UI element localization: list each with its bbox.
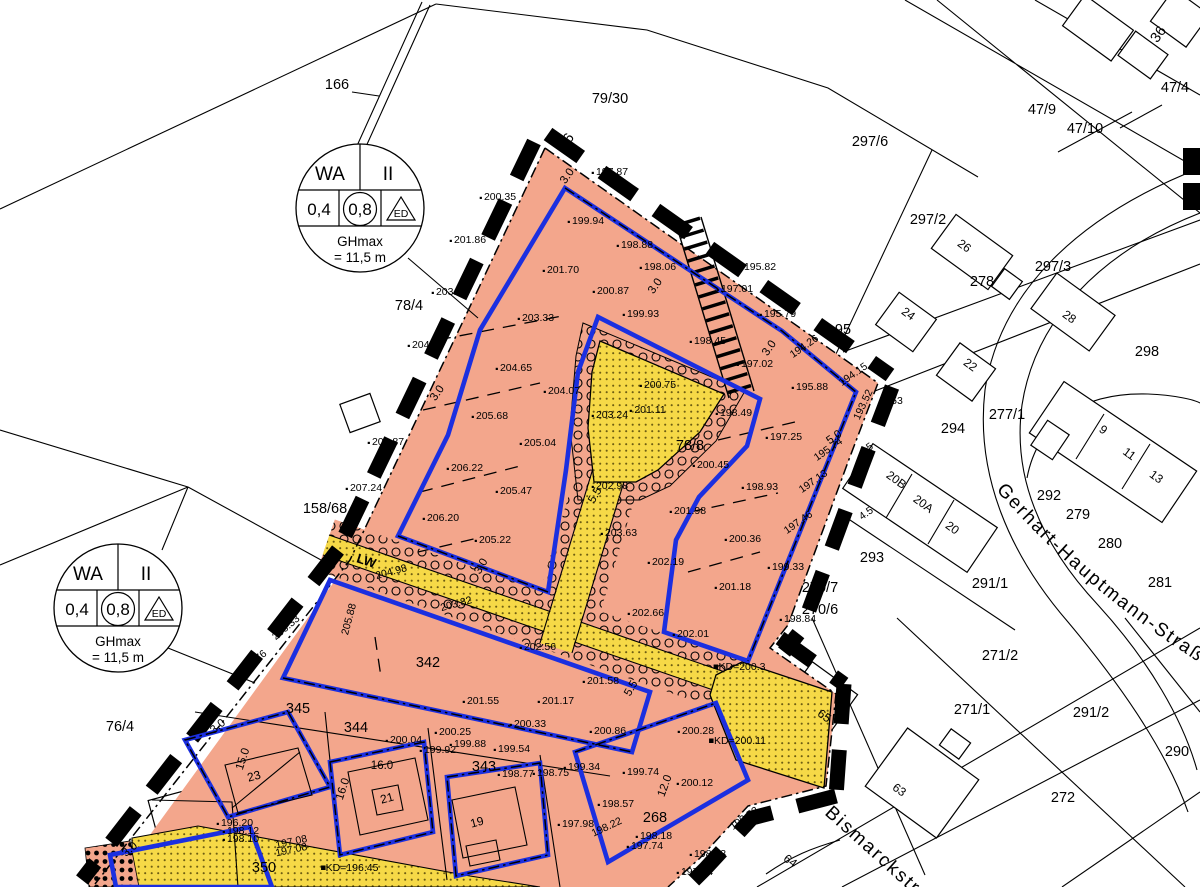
survey-point-marker xyxy=(408,345,410,347)
dimension-label: 16.0 xyxy=(371,760,393,772)
parcel-label: 166 xyxy=(325,77,349,93)
elevation-label: 195.88 xyxy=(796,381,828,393)
survey-point-marker xyxy=(640,267,642,269)
legend-height-value: = 11,5 m xyxy=(92,650,144,665)
legend-gfz: 0,8 xyxy=(348,200,372,219)
elevation-label: 197.87 xyxy=(596,166,628,178)
survey-point-marker xyxy=(558,824,560,826)
elevation-label: 203.24 xyxy=(596,409,628,421)
elevation-label: 201.70 xyxy=(547,264,579,276)
elevation-label: 199.93 xyxy=(627,308,659,320)
parcel-label: 47/9 xyxy=(1028,102,1056,118)
zoning-map-canvas: WA II 0,4 0,8 ED GHmax = 11,5 m WA II 0,… xyxy=(0,0,1200,887)
survey-point-marker xyxy=(590,731,592,733)
legend-roof-form: ED xyxy=(394,208,409,220)
elevation-label: 198.77 xyxy=(502,768,534,780)
survey-point-marker xyxy=(346,488,348,490)
survey-point-marker xyxy=(496,368,498,370)
elevation-label: 199.88 xyxy=(454,738,486,750)
survey-point-marker xyxy=(709,739,714,744)
parcel-label: 293 xyxy=(860,550,884,566)
parcel-label: 291/2 xyxy=(1073,705,1109,721)
survey-point-marker xyxy=(520,443,522,445)
legend-height-label: GHmax xyxy=(95,634,141,649)
parcel-label: 297/6 xyxy=(852,134,888,150)
elevation-label: 200.04 xyxy=(390,734,422,746)
survey-point-marker xyxy=(568,221,570,223)
survey-point-marker xyxy=(678,731,680,733)
survey-point-marker xyxy=(716,413,718,415)
survey-point-marker xyxy=(640,385,642,387)
elevation-label: 200.45 xyxy=(697,459,729,471)
survey-point-marker xyxy=(792,387,794,389)
elevation-label: 201.18 xyxy=(719,581,751,593)
parcel-label: 268 xyxy=(643,810,667,826)
elevation-label: 200.86 xyxy=(594,725,626,737)
elevation-label: 198.06 xyxy=(644,261,676,273)
parcel-label: 281 xyxy=(1148,575,1172,591)
survey-point-marker xyxy=(737,364,739,366)
elevation-label: 201.11 xyxy=(634,404,665,416)
survey-point-marker xyxy=(544,391,546,393)
elevation-label: 198.75 xyxy=(537,767,569,779)
parcel-label: 280 xyxy=(1098,536,1122,552)
parcel-label: 342 xyxy=(416,655,440,671)
parcel-label: 47/10 xyxy=(1067,121,1103,137)
elevation-label: 202.19 xyxy=(652,556,684,568)
legend-storeys: II xyxy=(383,164,394,185)
elevation-label: 198.93 xyxy=(746,481,778,493)
elevation-label: 201.98 xyxy=(674,505,706,517)
survey-point-marker xyxy=(623,314,625,316)
survey-point-marker xyxy=(435,732,437,734)
elevation-label: 198.84 xyxy=(784,613,816,625)
survey-point-marker xyxy=(740,267,742,269)
survey-point-marker xyxy=(677,872,679,874)
survey-point-marker xyxy=(717,289,719,291)
elevation-label: 197.64 xyxy=(681,866,713,878)
elevation-label: 204.65 xyxy=(500,362,532,374)
survey-point-marker xyxy=(690,854,692,856)
survey-point-marker xyxy=(420,750,422,752)
survey-point-marker xyxy=(592,415,594,417)
parcel-label: 344 xyxy=(344,720,368,736)
survey-point-marker xyxy=(760,314,762,316)
elevation-label: 199.33 xyxy=(772,561,804,573)
survey-point-marker xyxy=(598,804,600,806)
parcel-label: 47/4 xyxy=(1161,80,1189,96)
legend-use-type: WA xyxy=(315,164,345,185)
elevation-label: 204.45 xyxy=(412,339,444,351)
parcel-label: 271/2 xyxy=(982,648,1018,664)
parcel-label: 158/68 xyxy=(303,501,347,517)
elevation-label: 200.36 xyxy=(729,533,761,545)
parcel-label: 343 xyxy=(472,759,496,775)
survey-point-marker xyxy=(538,701,540,703)
elevation-label: 204.07 xyxy=(548,385,580,397)
legend-gfz: 0,8 xyxy=(106,600,130,619)
elevation-label: 201.55 xyxy=(467,695,499,707)
kd-elevation-label: KD=200.3 xyxy=(719,661,766,673)
survey-point-marker xyxy=(648,562,650,564)
survey-point-marker xyxy=(518,318,520,320)
legend-symbol-north: WA II 0,4 0,8 ED GHmax = 11,5 m xyxy=(296,144,424,272)
legend-roof-form: ED xyxy=(152,608,167,620)
elevation-label: 197.02 xyxy=(741,358,773,370)
survey-point-marker xyxy=(510,724,512,726)
elevation-label: 206.20 xyxy=(427,512,459,524)
survey-point-marker xyxy=(494,749,496,751)
parcel-label: 297/3 xyxy=(1035,259,1071,275)
elevation-label: 201.58 xyxy=(587,675,619,687)
elevation-label: 198.57 xyxy=(602,798,634,810)
elevation-label: 200.28 xyxy=(682,725,714,737)
elevation-label: 206.87 xyxy=(372,436,404,448)
elevation-label: 198.10 xyxy=(227,833,259,845)
survey-point-marker xyxy=(617,245,619,247)
elevation-label: 200.35 xyxy=(484,191,516,203)
elevation-label: 205.68 xyxy=(476,410,508,422)
elevation-label: 207.24 xyxy=(350,482,382,494)
elevation-label: 199.94 xyxy=(572,215,604,227)
survey-point-marker xyxy=(693,465,695,467)
elevation-label: 203.63 xyxy=(605,527,637,539)
elevation-label: 197.01 xyxy=(721,283,753,295)
elevation-label: 200.12 xyxy=(681,777,713,789)
survey-point-marker xyxy=(630,410,632,412)
elevation-label: 202.01 xyxy=(677,628,709,640)
parcel-label: 292 xyxy=(1037,488,1061,504)
survey-point-marker xyxy=(628,613,630,615)
survey-point-marker xyxy=(498,774,500,776)
survey-point-marker xyxy=(593,291,595,293)
elevation-label: 200.87 xyxy=(597,285,629,297)
legend-grz: 0,4 xyxy=(65,600,89,619)
survey-point-marker xyxy=(583,681,585,683)
elevation-label: 205.22 xyxy=(479,534,511,546)
parcel-label: 78/8 xyxy=(676,438,704,454)
survey-point-marker xyxy=(520,647,522,649)
survey-point-marker xyxy=(690,341,692,343)
parcel-label: 270/7 xyxy=(802,580,838,596)
parcel-label: 291/1 xyxy=(972,576,1008,592)
zoning-map-page: WA II 0,4 0,8 ED GHmax = 11,5 m WA II 0,… xyxy=(0,0,1200,887)
survey-point-marker xyxy=(450,744,452,746)
elevation-label: 199.54 xyxy=(498,743,530,755)
parcel-label: 76/4 xyxy=(106,719,134,735)
survey-point-marker xyxy=(623,772,625,774)
survey-point-marker xyxy=(714,665,719,670)
survey-point-marker xyxy=(423,518,425,520)
parcel-label: 290 xyxy=(1165,744,1189,760)
elevation-label: 197.25 xyxy=(770,431,802,443)
elevation-label: 198.49 xyxy=(720,407,752,419)
parcel-label: 95 xyxy=(835,322,851,338)
legend-height-value: = 11,5 m xyxy=(334,250,386,265)
parcel-label: 47/ xyxy=(1187,184,1200,200)
survey-point-marker xyxy=(386,740,388,742)
elevation-label: 201.17 xyxy=(542,695,574,707)
survey-point-marker xyxy=(768,567,770,569)
elevation-label: 200.33 xyxy=(514,718,546,730)
elevation-label: 202.66 xyxy=(632,607,664,619)
elevation-label: 53 xyxy=(891,395,903,407)
elevation-label: 206.22 xyxy=(451,462,483,474)
parcel-label: 272 xyxy=(1051,790,1075,806)
elevation-label: 203.33 xyxy=(522,312,554,324)
legend-symbol-south: WA II 0,4 0,8 ED GHmax = 11,5 m xyxy=(54,544,182,672)
elevation-label: 201.86 xyxy=(454,234,486,246)
survey-point-marker xyxy=(725,539,727,541)
elevation-label: 198.33 xyxy=(694,848,726,860)
survey-point-marker xyxy=(368,442,370,444)
elevation-label: 200.25 xyxy=(439,726,471,738)
elevation-label: 195.82 xyxy=(744,261,776,273)
survey-point-marker xyxy=(627,846,629,848)
survey-point-marker xyxy=(432,292,434,294)
legend-storeys: II xyxy=(141,564,152,585)
survey-point-marker xyxy=(742,487,744,489)
survey-point-marker xyxy=(223,831,225,833)
elevation-label: 205.04 xyxy=(524,437,556,449)
survey-point-marker xyxy=(472,416,474,418)
elevation-label: 198.45 xyxy=(694,335,726,347)
elevation-label: 205.47 xyxy=(500,485,532,497)
parcel-label: 277/1 xyxy=(989,407,1025,423)
parcel-label: 78/4 xyxy=(395,298,423,314)
elevation-label: 199.34 xyxy=(568,761,600,773)
survey-point-marker xyxy=(223,839,225,841)
legend-use-type: WA xyxy=(73,564,103,585)
survey-point-marker xyxy=(496,491,498,493)
survey-point-marker xyxy=(475,540,477,542)
kd-elevation-label: KD=200.11 xyxy=(714,735,766,747)
parcel-label: 350 xyxy=(252,860,276,876)
elevation-label: 198.88 xyxy=(621,239,653,251)
survey-point-marker xyxy=(670,511,672,513)
kd-elevation-label: KD=196.45 xyxy=(326,862,379,874)
elevation-label: 202.56 xyxy=(524,641,556,653)
survey-point-marker xyxy=(217,823,219,825)
survey-point-marker xyxy=(780,619,782,621)
survey-point-marker xyxy=(677,783,679,785)
survey-point-marker xyxy=(766,437,768,439)
parcel-label: 278 xyxy=(970,274,994,290)
parcel-label: 345 xyxy=(286,701,310,717)
survey-point-marker xyxy=(673,634,675,636)
survey-point-marker xyxy=(463,701,465,703)
legend-grz: 0,4 xyxy=(307,200,331,219)
parcel-label: 271/1 xyxy=(954,702,990,718)
elevation-label: 197.74 xyxy=(631,840,663,852)
survey-point-marker xyxy=(636,836,638,838)
survey-point-marker xyxy=(447,468,449,470)
survey-point-marker xyxy=(543,270,545,272)
legend-height-label: GHmax xyxy=(337,234,383,249)
survey-point-marker xyxy=(601,533,603,535)
parcel-label: 294 xyxy=(941,421,965,437)
parcel-label: 79/30 xyxy=(592,91,628,107)
survey-point-marker xyxy=(480,197,482,199)
parcel-label: 279 xyxy=(1066,507,1090,523)
parcel-label: 298 xyxy=(1135,344,1159,360)
survey-point-marker xyxy=(715,587,717,589)
survey-point-marker xyxy=(450,240,452,242)
parcel-label: 297/2 xyxy=(910,212,946,228)
elevation-label: 199.74 xyxy=(627,766,659,778)
survey-point-marker xyxy=(887,401,889,403)
elevation-label: 200.75 xyxy=(644,379,676,391)
survey-point-marker xyxy=(592,172,594,174)
elevation-label: 203.55 xyxy=(436,286,468,298)
elevation-label: 195.79 xyxy=(764,308,796,320)
